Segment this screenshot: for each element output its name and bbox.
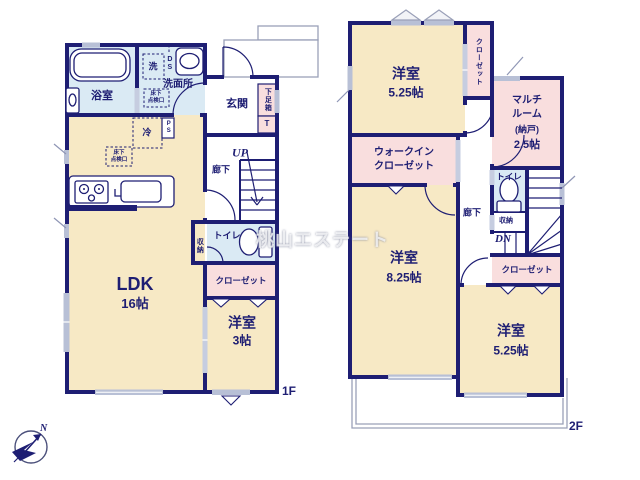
wic-line1: ウォークイン — [374, 147, 434, 160]
shoe-cabinet-t-label: T — [265, 119, 270, 129]
multi-room-line1: マルチ — [512, 95, 542, 108]
compass-icon — [12, 431, 47, 463]
toilet-1f-label: トイレ — [213, 230, 240, 241]
compass-north-label: N — [40, 423, 47, 436]
multi-room-line4: 2.5帖 — [514, 139, 540, 153]
room-label-bath: 浴室 — [91, 90, 113, 104]
stairs-up-label: UP — [232, 146, 248, 161]
floor-hatch-washroom: 床下 点検口 — [148, 91, 165, 105]
room-size-bedroom-c: 5.25帖 — [493, 344, 528, 359]
room-label-entrance: 玄関 — [226, 98, 248, 112]
storage-1f-label: 収納 — [195, 238, 204, 254]
stairs-down-label: DN — [495, 233, 511, 247]
wic-line2: クローゼット — [374, 161, 434, 174]
shoe-cabinet-label: 下足箱 — [263, 88, 272, 112]
duct-space-label: DS — [165, 56, 174, 72]
refrigerator-label: 冷 — [142, 127, 151, 138]
room-label-washroom: 洗面所 — [163, 79, 193, 92]
room-label-bedroom-b: 洋室 — [390, 249, 418, 267]
floor-label-1f: 1F — [282, 384, 296, 399]
room-label-bedroom-c: 洋室 — [497, 322, 525, 340]
multi-room-line2: ルーム — [512, 109, 542, 122]
storage-2f-label: 収納 — [499, 218, 513, 227]
room-size-bedroom-a: 5.25帖 — [388, 86, 423, 101]
washer-label: 洗 — [148, 61, 157, 72]
closet-bottom-label: クローゼット — [501, 265, 552, 276]
multi-room-line3: (納戸) — [515, 124, 539, 135]
wash-basin — [176, 48, 203, 75]
floor-hatch-ldk: 床下 点検口 — [111, 150, 128, 164]
room-size-bedroom3: 3帖 — [233, 334, 252, 349]
closet-1f-label: クローゼット — [215, 276, 266, 287]
hallway-1f-label: 廊下 — [212, 164, 230, 175]
floor-label-2f: 2F — [569, 419, 583, 434]
pipe-space-label: PS — [164, 121, 172, 135]
room-label-bedroom-a: 洋室 — [392, 65, 420, 83]
watermark: 桃山エステート — [256, 226, 386, 252]
closet-top-label: クローゼット — [474, 38, 483, 86]
hallway-2f-label: 廊下 — [463, 207, 481, 218]
floorplan-canvas: 浴室 洗面所 洗 DS 床下 点検口 玄関 下足箱 T 冷 PS UP 廊下 床… — [0, 0, 640, 480]
kitchen-counter — [69, 176, 174, 211]
room-size-bedroom-b: 8.25帖 — [386, 271, 421, 286]
toilet-2f-label: トイレ — [496, 172, 522, 183]
room-label-ldk: LDK — [117, 273, 154, 296]
room-size-ldk: 16帖 — [121, 296, 148, 312]
room-fills — [67, 23, 562, 395]
room-label-bedroom3: 洋室 — [228, 314, 256, 332]
